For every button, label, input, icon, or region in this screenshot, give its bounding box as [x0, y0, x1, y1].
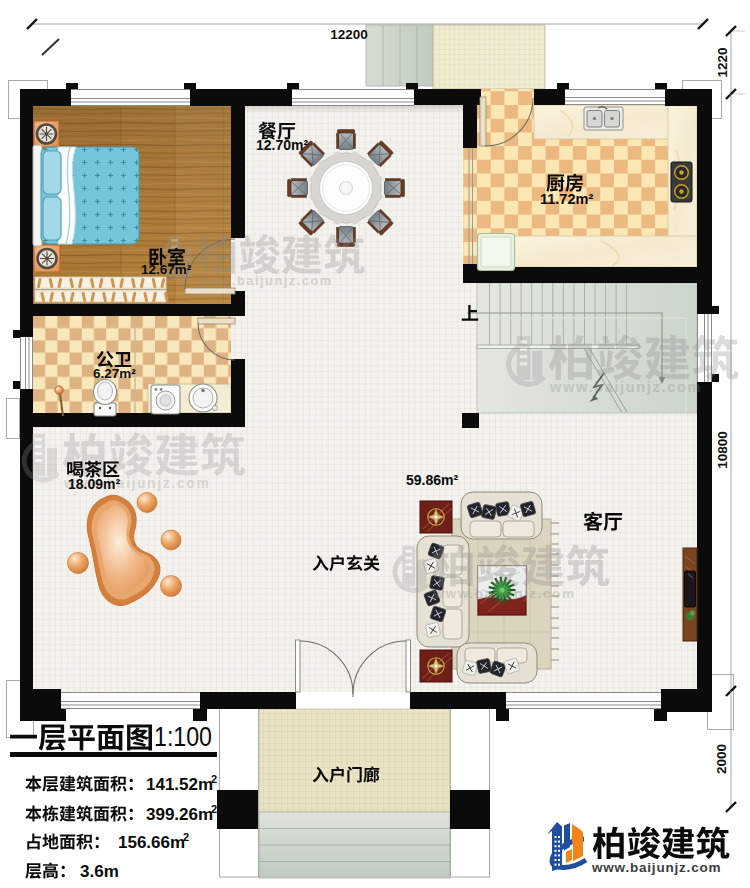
svg-text:10800: 10800	[715, 431, 730, 469]
svg-text:2: 2	[211, 803, 217, 815]
svg-text:1220: 1220	[715, 47, 730, 77]
svg-text:www.baijunjz.com: www.baijunjz.com	[591, 860, 721, 875]
svg-text:6.27m²: 6.27m²	[93, 366, 136, 381]
svg-text:59.86m²: 59.86m²	[406, 472, 458, 488]
svg-text:12.70m²: 12.70m²	[256, 137, 308, 153]
svg-text:2000: 2000	[714, 744, 729, 774]
svg-text:399.26m: 399.26m	[146, 805, 213, 824]
svg-text:2: 2	[183, 831, 189, 843]
svg-text:2: 2	[211, 773, 217, 785]
svg-text:141.52m: 141.52m	[146, 775, 213, 794]
svg-text:11.72m²: 11.72m²	[540, 191, 593, 207]
svg-text:18.09m²: 18.09m²	[68, 476, 120, 492]
svg-text:12200: 12200	[330, 27, 368, 42]
svg-text:3.6m: 3.6m	[80, 862, 119, 881]
svg-text:12.67m²: 12.67m²	[141, 262, 192, 277]
svg-text:156.66m: 156.66m	[118, 833, 185, 852]
svg-text:1:100: 1:100	[154, 721, 212, 752]
